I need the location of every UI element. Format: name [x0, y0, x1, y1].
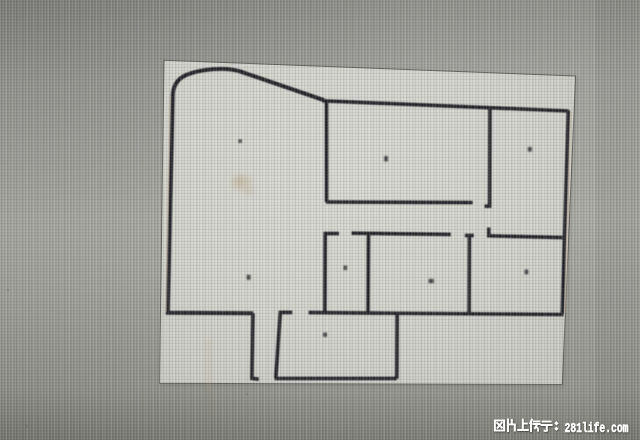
svg-text:281life.com: 281life.com [565, 421, 629, 437]
